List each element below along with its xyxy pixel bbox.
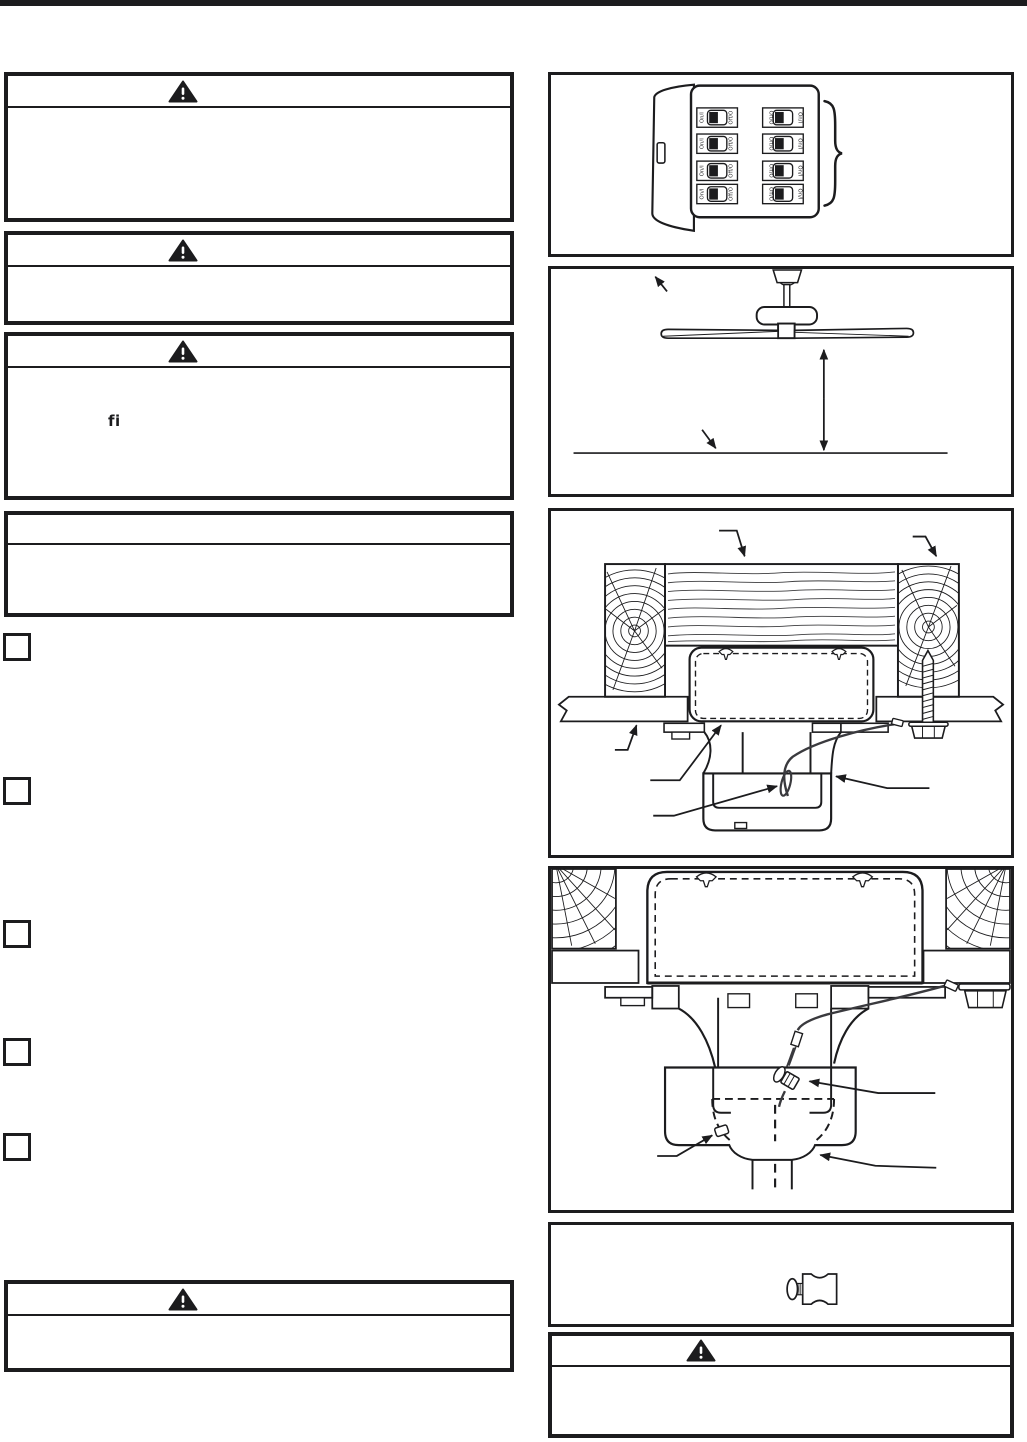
breaker-on-label: On/I xyxy=(796,112,802,123)
breaker-panel-drawing: On/IOff/O On/IOff/O On/IOff/O On/IOff/O … xyxy=(551,75,1011,254)
wood-brace xyxy=(665,564,898,646)
breaker-door xyxy=(652,85,694,231)
breaker-on-label: On/I xyxy=(700,112,706,123)
bracket-pointer-arrow xyxy=(836,776,929,788)
breaker-off-label: Off/O xyxy=(767,164,773,178)
fan-motor-housing xyxy=(757,307,817,325)
fan-blade-iron xyxy=(778,324,795,339)
breaker-on-label: On/I xyxy=(700,138,706,149)
warning-box-2-header xyxy=(8,235,510,267)
lag-screw-nut xyxy=(959,984,1010,1008)
hanger-bracket xyxy=(664,723,888,830)
hex-nut xyxy=(965,991,1006,1008)
ceiling-pointer-arrow xyxy=(615,725,637,750)
fan-downrod xyxy=(784,285,790,307)
ceiling-left xyxy=(559,697,688,722)
joist-pointer-arrow xyxy=(913,537,937,557)
breaker-off-label: Off/O xyxy=(729,164,735,178)
step-checkbox-5 xyxy=(3,1133,31,1161)
breaker-on-label: On/I xyxy=(796,138,802,149)
fan-canopy xyxy=(773,270,801,283)
warning-box-5-header xyxy=(552,1336,1010,1367)
figure-joist-cross-section xyxy=(548,508,1014,858)
warning-box-1 xyxy=(4,72,514,222)
breaker-on-label: On/I xyxy=(796,165,802,176)
warning-box-4-header xyxy=(8,1284,510,1316)
step-checkbox-2 xyxy=(3,777,31,805)
warning-box-3-header xyxy=(8,336,510,368)
breaker-on-label: On/I xyxy=(700,165,706,176)
outlet-box xyxy=(690,648,874,722)
screw-head xyxy=(787,1279,797,1300)
ceiling-right xyxy=(923,951,1009,983)
step-checkbox-3 xyxy=(3,920,31,948)
outlet-box xyxy=(647,872,922,983)
breaker-off-label: Off/O xyxy=(767,187,773,201)
figure-fan-floor-clearance xyxy=(548,266,1014,497)
door-handle xyxy=(657,143,665,163)
cup-screw xyxy=(714,1125,729,1137)
ceiling-right xyxy=(876,697,1003,722)
fan-clearance-drawing xyxy=(551,269,1011,494)
ceiling-fan xyxy=(661,270,913,338)
breaker-off-label: Off/O xyxy=(729,111,735,125)
mounting-structure-drawing xyxy=(551,511,1011,855)
ceiling-pointer-arrow xyxy=(655,277,667,292)
body-text-fragment: fi xyxy=(108,412,121,430)
breaker-off-label: Off/O xyxy=(729,187,735,201)
warning-triangle-icon xyxy=(686,1339,716,1362)
warning-box-5 xyxy=(548,1332,1014,1438)
figure-circuit-breaker-panel: On/IOff/O On/IOff/O On/IOff/O On/IOff/O … xyxy=(548,72,1014,257)
warning-triangle-icon xyxy=(168,340,198,363)
notice-box-header xyxy=(8,515,510,545)
breaker-off-label: Off/O xyxy=(729,137,735,151)
breaker-on-label: On/I xyxy=(700,188,706,199)
warning-triangle-icon xyxy=(168,239,198,262)
ball-pointer-arrow xyxy=(820,1155,936,1168)
cable-end-clamp xyxy=(944,980,958,992)
clamp-part-drawing xyxy=(551,1225,1011,1324)
step-checkbox-1 xyxy=(3,633,31,661)
warning-box-3: fi xyxy=(4,332,514,500)
cable-loop-pointer-arrow xyxy=(653,786,777,815)
hex-nut xyxy=(912,726,945,738)
breaker-off-label: Off/O xyxy=(767,111,773,125)
warning-box-2 xyxy=(4,231,514,325)
breaker-on-label: On/I xyxy=(796,189,802,200)
figure-cable-clamp-part xyxy=(548,1222,1014,1327)
ceiling-left xyxy=(552,951,638,983)
warning-box-4 xyxy=(4,1280,514,1372)
brace-pointer-arrow xyxy=(719,531,745,557)
cup-tab xyxy=(735,823,747,829)
floor-pointer-arrow xyxy=(702,430,716,449)
figure-bracket-cable-detail xyxy=(548,866,1014,1213)
clamp-pointer-arrow xyxy=(809,1081,935,1093)
breaker-off-label: Off/O xyxy=(767,137,773,151)
notice-box xyxy=(4,511,514,617)
manual-page: { "page": { "kind": "instruction-manual-… xyxy=(0,0,1027,1442)
washer xyxy=(959,984,1010,990)
page-top-rule xyxy=(0,0,1027,6)
cable-sleeve xyxy=(791,1031,803,1047)
step-checkbox-4 xyxy=(3,1038,31,1066)
warning-triangle-icon xyxy=(168,1288,198,1311)
grouping-brace xyxy=(825,101,842,205)
clamp-part xyxy=(787,1274,837,1304)
warning-triangle-icon xyxy=(168,80,198,103)
cable-clamp xyxy=(771,1065,800,1092)
ball-bottom-and-downrod xyxy=(729,1141,815,1189)
warning-box-1-header xyxy=(8,76,510,108)
bracket-detail-drawing xyxy=(551,869,1011,1210)
